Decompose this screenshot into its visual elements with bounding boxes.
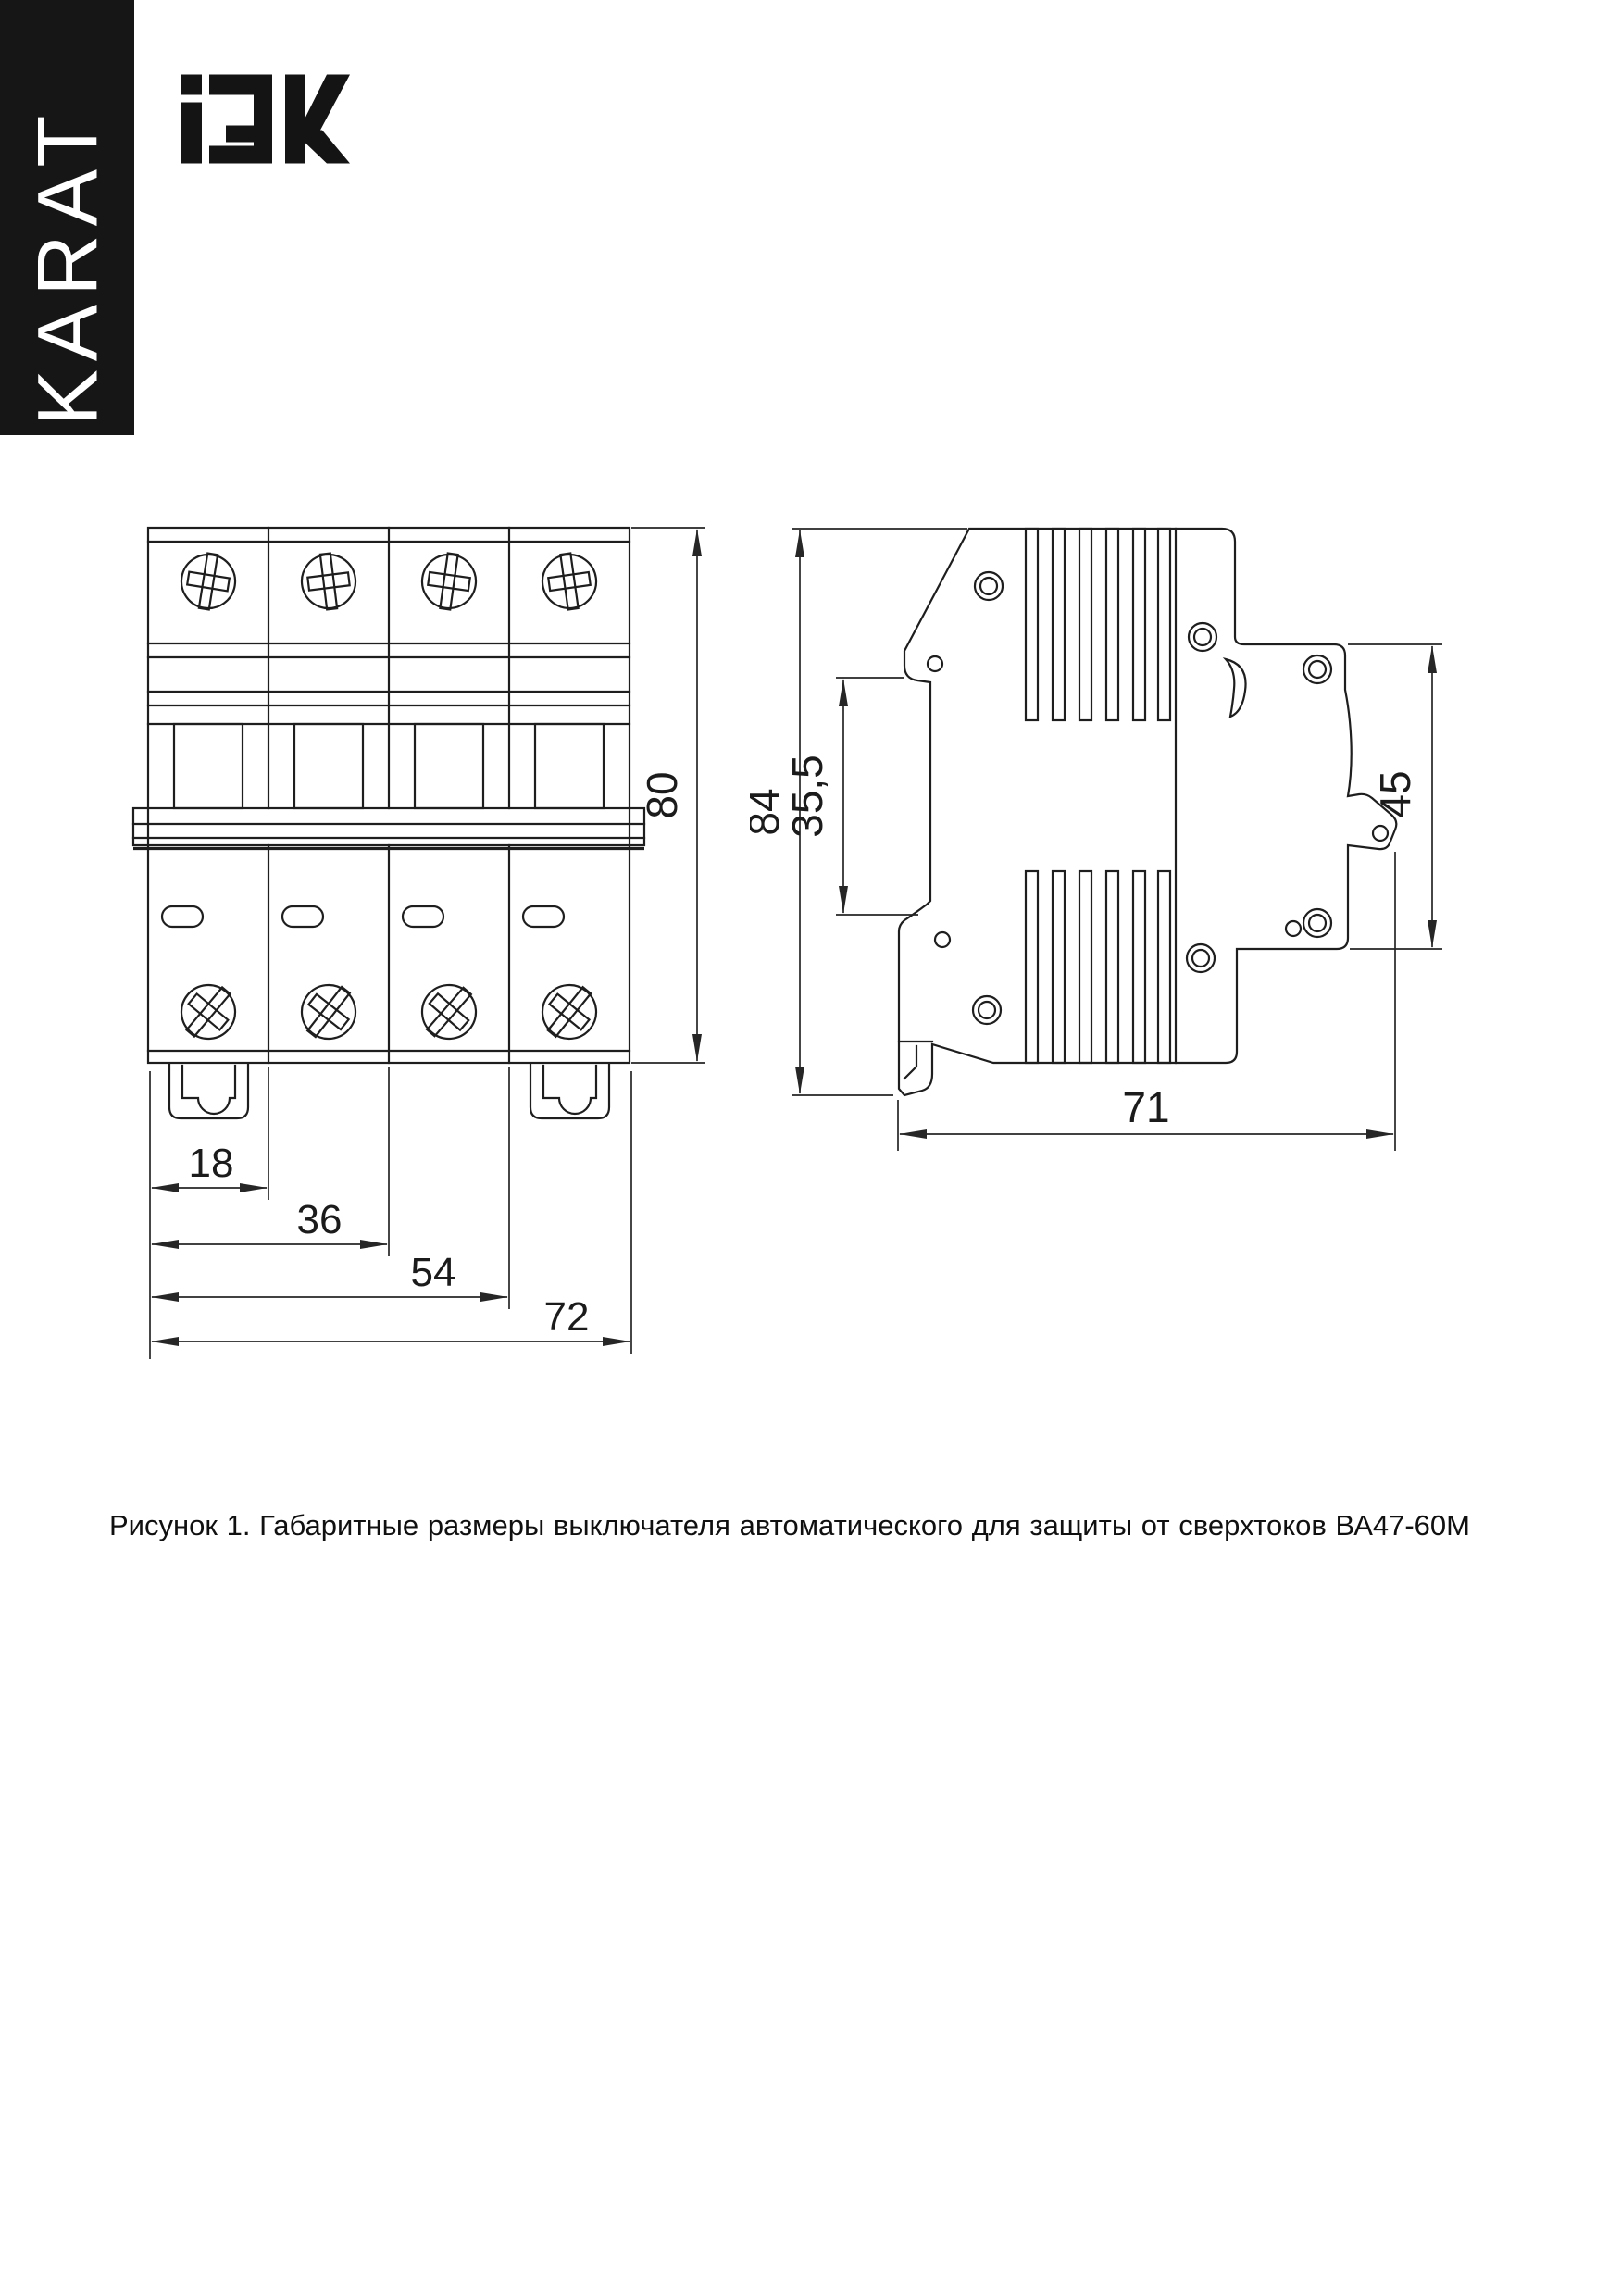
brand-sidebar: KARAT — [0, 0, 134, 435]
dim-label-54: 54 — [411, 1250, 456, 1295]
iek-logo-glyphs — [181, 75, 350, 164]
dim-height-80: 80 — [631, 528, 705, 1063]
curved-slot — [1226, 659, 1246, 717]
dim-depth-71: 71 — [898, 852, 1395, 1151]
document-page: KARAT — [0, 0, 1621, 2296]
dim-din-rail: 35,5 — [783, 678, 918, 915]
dim-label-84: 84 — [750, 788, 788, 835]
dim-label-72: 72 — [544, 1294, 590, 1340]
dim-label-35-5: 35,5 — [783, 755, 831, 838]
vent-ribs-bottom — [1026, 871, 1170, 1063]
brand-label: KARAT — [20, 107, 118, 427]
dim-label-71: 71 — [1122, 1083, 1169, 1131]
front-view-drawing: 80 18 36 54 72 — [120, 509, 731, 1389]
indicator-windows — [162, 906, 564, 927]
din-clip-left — [169, 1065, 248, 1118]
breaker-front-outline — [148, 528, 630, 1063]
dim-label-80: 80 — [638, 771, 686, 818]
iek-logo — [181, 74, 350, 164]
din-clip-right — [530, 1065, 609, 1118]
vent-ribs-top — [1026, 529, 1170, 720]
toggle-crossbar — [133, 808, 644, 849]
module-dividers — [268, 528, 509, 1063]
figure-caption: Рисунок 1. Габаритные размеры выключател… — [109, 1508, 1470, 1544]
dim-label-45: 45 — [1371, 770, 1419, 817]
side-view-drawing: 84 35,5 45 71 — [750, 509, 1472, 1168]
dim-label-18: 18 — [189, 1141, 234, 1186]
dim-label-36: 36 — [297, 1197, 343, 1242]
din-clip-side-detail — [899, 1042, 932, 1079]
